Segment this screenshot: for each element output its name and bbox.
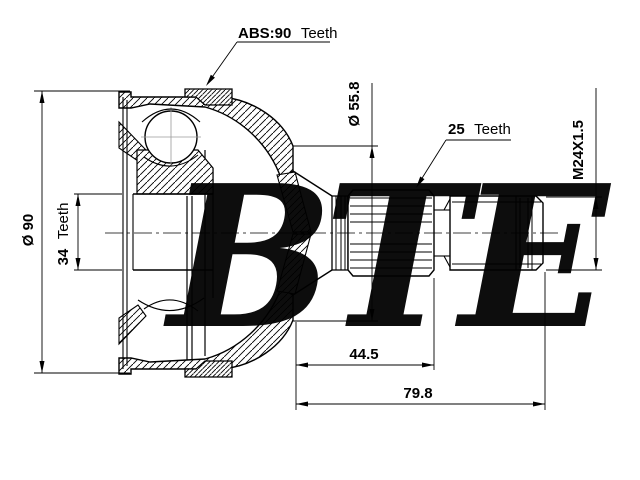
abs-callout-word: Teeth: [301, 25, 338, 42]
inner-spline-word: Teeth: [55, 203, 72, 240]
outer-spline-value: 25: [448, 121, 465, 138]
abs-callout: ABS:90 Teeth: [238, 25, 338, 42]
inner-spline-label: 34 Teeth: [55, 203, 72, 266]
cv-joint-technical-drawing: ABS:90 Teeth 25 Teeth Ø 90 34 Teeth Ø 55…: [0, 0, 640, 480]
outer-spline-callout: 25 Teeth: [448, 121, 511, 138]
outer-spline-word: Teeth: [474, 121, 511, 138]
total-length-label: 79.8: [403, 385, 432, 402]
abs-callout-value: ABS:90: [238, 25, 291, 42]
inner-spline-value: 34: [55, 248, 72, 265]
housing-rear-diameter-label: Ø 55.8: [346, 81, 363, 126]
outer-diameter-label: Ø 90: [20, 214, 37, 247]
brand-watermark: BTE: [163, 143, 612, 373]
drawing-canvas: ABS:90 Teeth 25 Teeth Ø 90 34 Teeth Ø 55…: [0, 0, 640, 480]
